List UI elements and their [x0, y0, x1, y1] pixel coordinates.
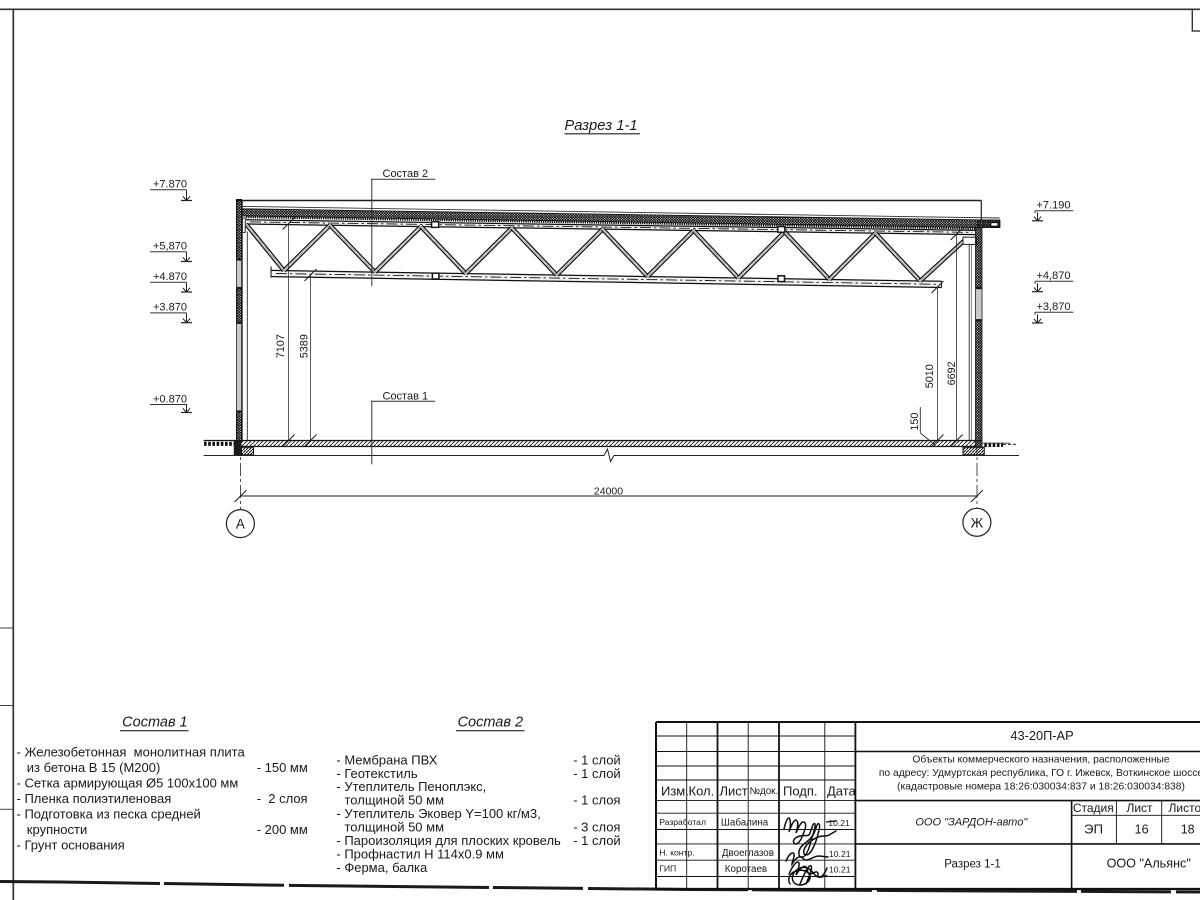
svg-text:- Сетка армирующая Ø5 100x100: - Сетка армирующая Ø5 100x100 мм — [17, 776, 239, 791]
svg-text:5389: 5389 — [299, 334, 311, 358]
svg-text:Дата: Дата — [827, 784, 857, 799]
svg-text:+5,870: +5,870 — [153, 241, 187, 253]
svg-text:из бетона В 15 (М200): из бетона В 15 (М200) — [27, 760, 161, 775]
svg-text:Листов: Листов — [1169, 801, 1200, 815]
svg-text:крупности: крупности — [27, 822, 87, 837]
svg-text:Стадия: Стадия — [1073, 801, 1114, 815]
svg-text:ГИП: ГИП — [659, 864, 676, 874]
svg-text:- Пленка полиэтиленовая: - Пленка полиэтиленовая — [17, 791, 172, 806]
svg-text:Состав 2: Состав 2 — [458, 715, 523, 731]
svg-text:Разрез 1-1: Разрез 1-1 — [944, 858, 1000, 870]
svg-text:+3.870: +3.870 — [153, 302, 187, 314]
svg-text:по адресу: Удмуртская республи: по адресу: Удмуртская республика, ГО г. … — [879, 767, 1200, 779]
svg-text:10.21: 10.21 — [828, 818, 850, 828]
svg-text:- 2 слоя: - 2 слоя — [257, 791, 308, 806]
svg-text:Шабалина: Шабалина — [721, 818, 769, 829]
svg-text:- 1 слоя: - 1 слоя — [573, 793, 620, 808]
svg-text:- 200 мм: - 200 мм — [257, 822, 308, 837]
svg-text:Коротаев: Коротаев — [725, 864, 767, 875]
svg-text:ЭП: ЭП — [1084, 822, 1103, 837]
svg-text:10.21: 10.21 — [829, 849, 851, 859]
svg-text:Разработал: Разработал — [659, 817, 706, 827]
svg-text:+7.190: +7.190 — [1037, 200, 1071, 212]
svg-text:7107: 7107 — [275, 334, 287, 358]
svg-text:А: А — [236, 517, 245, 532]
svg-text:+0.870: +0.870 — [153, 393, 187, 405]
svg-text:Состав 1: Состав 1 — [122, 715, 187, 731]
svg-text:Подп.: Подп. — [783, 784, 818, 799]
svg-text:Н. контр.: Н. контр. — [659, 848, 694, 858]
svg-text:5010: 5010 — [924, 364, 936, 388]
svg-text:- Железобетонная монолитная п: - Железобетонная монолитная плита — [17, 745, 246, 760]
svg-text:Состав 1: Состав 1 — [383, 390, 429, 402]
svg-text:(кадастровые номера 18:26:0300: (кадастровые номера 18:26:030034:837 и 1… — [897, 782, 1185, 793]
svg-text:10.21: 10.21 — [829, 865, 851, 875]
svg-text:- Грунт основания: - Грунт основания — [17, 838, 125, 853]
svg-text:+7.870: +7.870 — [153, 179, 187, 191]
svg-text:+4.870: +4.870 — [153, 271, 187, 283]
svg-text:- 150 мм: - 150 мм — [257, 760, 308, 775]
svg-text:Состав 2: Состав 2 — [383, 168, 429, 180]
svg-text:16: 16 — [1135, 823, 1149, 837]
svg-text:Изм.: Изм. — [661, 784, 689, 799]
svg-text:18: 18 — [1181, 823, 1195, 837]
svg-text:6692: 6692 — [946, 361, 958, 385]
svg-text:+3,870: +3,870 — [1037, 301, 1071, 313]
svg-text:Ж: Ж — [971, 515, 984, 530]
svg-text:- Подготовка из песка средней: - Подготовка из песка средней — [17, 807, 201, 822]
svg-text:ООО "ЗАРДОН-авто": ООО "ЗАРДОН-авто" — [915, 817, 1028, 829]
svg-text:- 1 слой: - 1 слой — [573, 833, 621, 848]
svg-text:Объекты коммерческого назначен: Объекты коммерческого назначения, распол… — [912, 754, 1170, 766]
svg-text:24000: 24000 — [594, 486, 623, 498]
svg-text:ООО "Альянс": ООО "Альянс" — [1107, 856, 1191, 870]
svg-text:№док.: №док. — [750, 786, 779, 797]
svg-text:Лист: Лист — [720, 784, 748, 799]
svg-text:- 1 слой: - 1 слой — [573, 766, 621, 781]
svg-text:Лист: Лист — [1126, 801, 1153, 815]
svg-text:Кол.: Кол. — [689, 784, 715, 799]
svg-text:Разрез 1-1: Разрез 1-1 — [564, 118, 637, 134]
svg-text:43-20П-АР: 43-20П-АР — [1010, 728, 1073, 743]
svg-text:Двоеглазов: Двоеглазов — [722, 848, 774, 859]
svg-text:+4,870: +4,870 — [1037, 270, 1071, 282]
svg-text:150: 150 — [909, 413, 921, 431]
svg-text:- Ферма, балка: - Ферма, балка — [336, 860, 428, 875]
